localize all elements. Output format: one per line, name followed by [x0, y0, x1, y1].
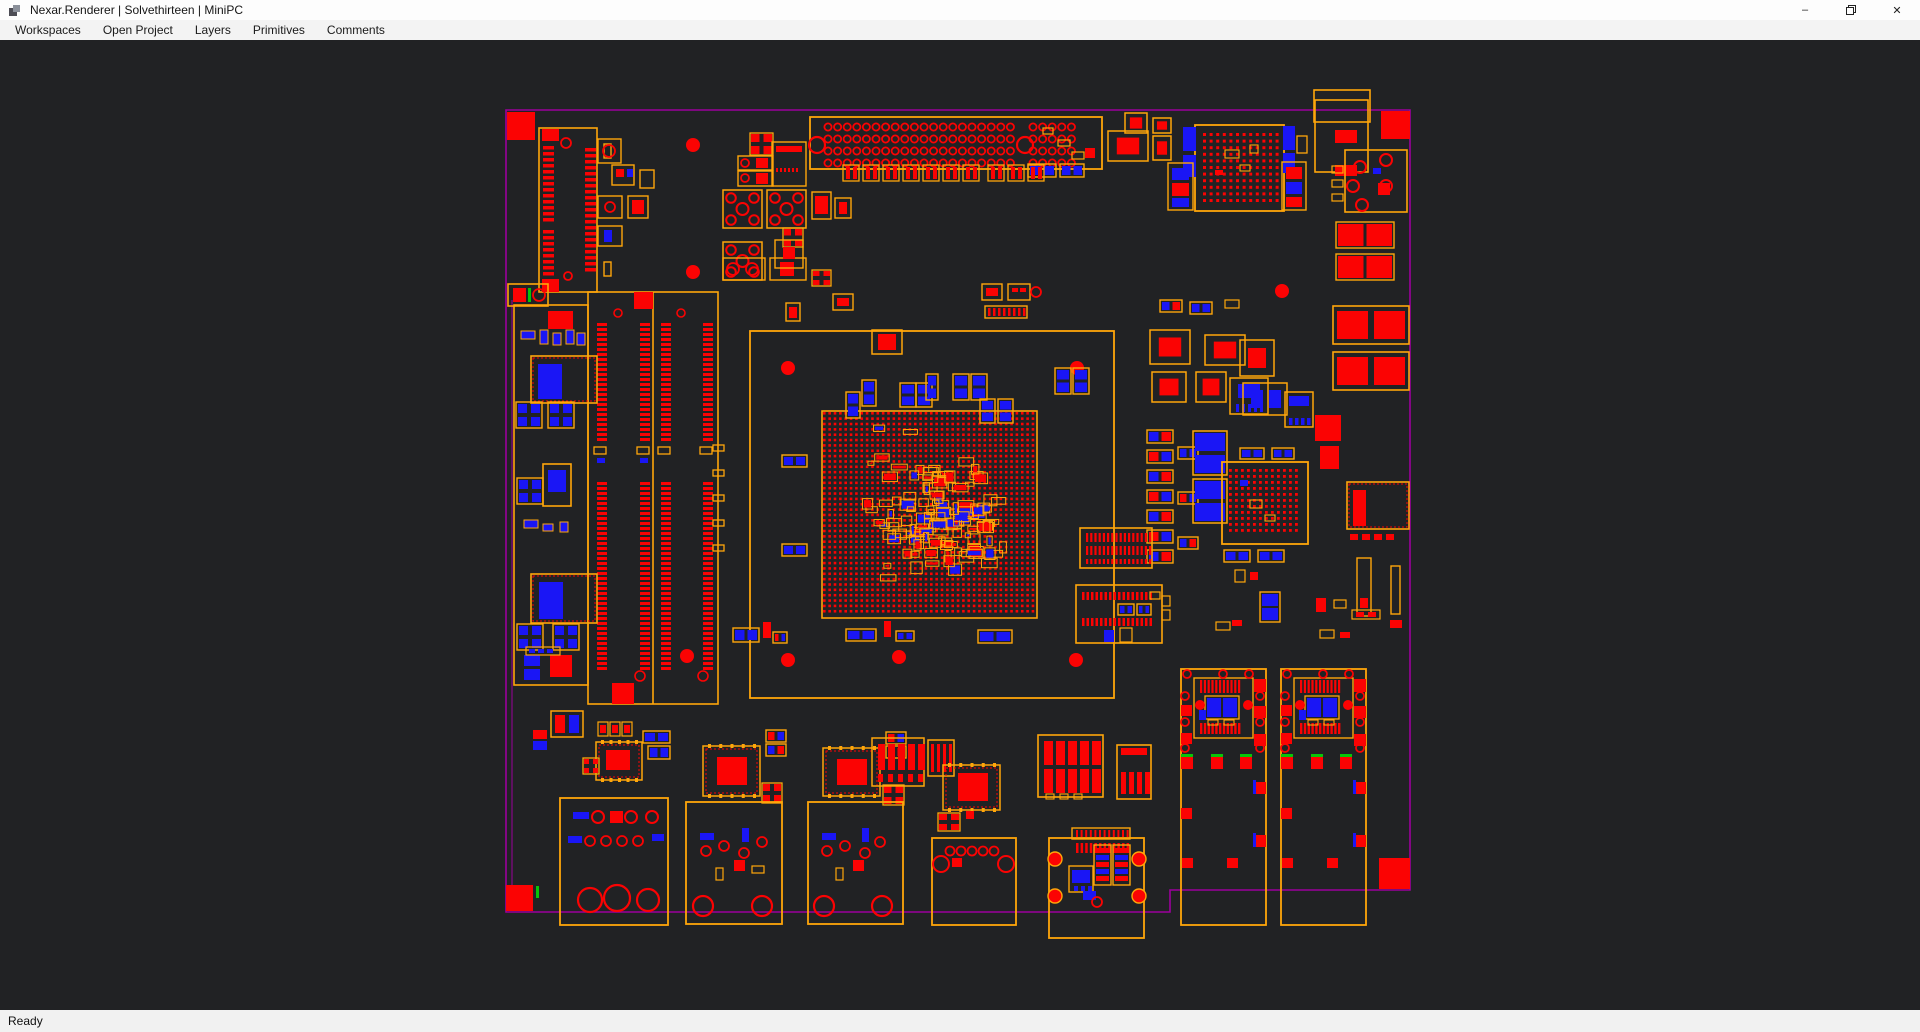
minimize-button[interactable]: – [1782, 0, 1828, 20]
pcb-canvas[interactable] [0, 40, 1920, 1010]
menu-item-workspaces[interactable]: Workspaces [5, 21, 91, 39]
restore-icon [1846, 5, 1856, 15]
close-button[interactable]: ✕ [1874, 0, 1920, 20]
menu-item-layers[interactable]: Layers [185, 21, 241, 39]
menu-item-open-project[interactable]: Open Project [93, 21, 183, 39]
window-title: Nexar.Renderer | Solvethirteen | MiniPC [30, 3, 243, 17]
status-text: Ready [8, 1014, 43, 1028]
maximize-button[interactable] [1828, 0, 1874, 20]
pcb-render[interactable] [0, 40, 1920, 1010]
window-controls: – ✕ [1782, 0, 1920, 20]
menu-item-comments[interactable]: Comments [317, 21, 395, 39]
menu-bar: WorkspacesOpen ProjectLayersPrimitivesCo… [0, 20, 1920, 40]
title-bar: Nexar.Renderer | Solvethirteen | MiniPC … [0, 0, 1920, 20]
status-bar: Ready [0, 1010, 1920, 1032]
menu-item-primitives[interactable]: Primitives [243, 21, 315, 39]
app-icon [8, 4, 21, 17]
